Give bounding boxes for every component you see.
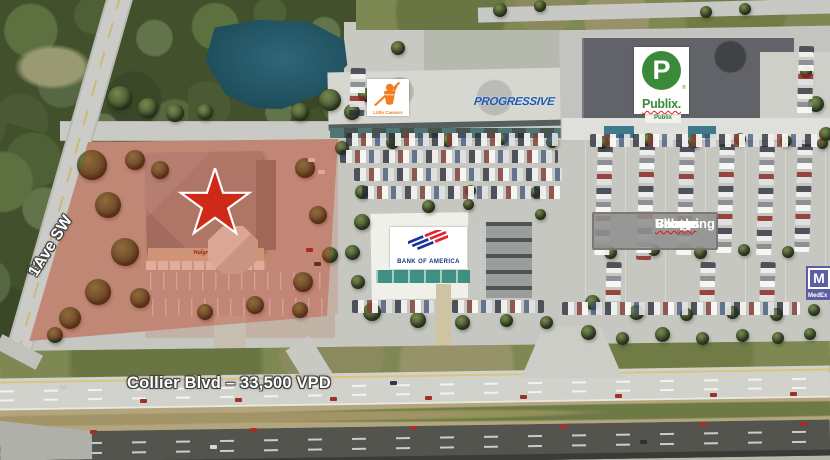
car-row	[349, 68, 366, 116]
car-row	[340, 150, 558, 163]
label-word-flagged: Center	[655, 216, 696, 232]
little-caesars-wordmark: Little Caesars	[367, 110, 409, 115]
tree	[581, 325, 596, 340]
publix-wordmark: Publix.	[634, 97, 689, 111]
tree	[463, 199, 474, 210]
car-row	[797, 46, 814, 116]
car	[330, 397, 337, 401]
tree	[319, 89, 341, 111]
car	[710, 393, 717, 397]
tree	[138, 98, 158, 118]
tree	[422, 200, 435, 213]
car	[425, 396, 432, 400]
car	[800, 422, 807, 426]
car-row	[354, 168, 562, 181]
tree	[500, 314, 513, 327]
tree	[738, 244, 750, 256]
car-row	[362, 186, 562, 199]
car	[520, 395, 527, 399]
publix-monogram-icon: P	[642, 51, 681, 90]
tree	[782, 246, 794, 258]
tree	[534, 0, 546, 12]
medexpress-monogram-icon: M	[808, 268, 830, 289]
tree	[455, 315, 470, 330]
car-row	[759, 262, 775, 302]
tree	[540, 316, 553, 329]
tree	[616, 332, 629, 345]
tree	[700, 6, 712, 18]
car	[390, 381, 397, 385]
tree	[108, 86, 132, 110]
bank-of-america-wordmark: BANK OF AMERICA	[390, 259, 467, 265]
car	[640, 440, 647, 444]
tree	[772, 332, 784, 344]
registered-mark: ®	[682, 85, 686, 91]
car-row	[605, 262, 621, 302]
subject-star-marker	[177, 168, 253, 240]
bank-of-america-flag-icon	[408, 230, 448, 252]
car	[700, 423, 707, 427]
tree	[291, 103, 309, 121]
tree	[736, 329, 749, 342]
car-row	[352, 300, 434, 313]
tree	[696, 332, 709, 345]
tree	[739, 3, 751, 15]
tree	[354, 214, 370, 230]
little-caesars-logo: Little Caesars	[367, 79, 409, 116]
little-caesars-icon	[370, 80, 406, 108]
car-row	[794, 144, 813, 252]
medexpress-logo: M MedEx	[806, 266, 830, 300]
car-row	[716, 144, 735, 256]
tree	[493, 3, 507, 17]
car-row	[562, 302, 800, 315]
tree	[655, 327, 670, 342]
medexpress-wordmark: MedEx	[808, 293, 827, 299]
shopping-center-name-label: Brooks Village Shopping Center	[592, 212, 718, 250]
progressive-logo: PROGRESSIVE	[473, 96, 555, 108]
bank-of-america-logo: BANK OF AMERICA	[390, 227, 467, 269]
tree	[804, 328, 816, 340]
car	[235, 398, 242, 402]
car	[60, 385, 67, 389]
tree	[410, 312, 426, 328]
car-row	[346, 133, 558, 146]
car-row	[452, 300, 544, 313]
tree	[351, 275, 365, 289]
car-row	[590, 134, 822, 147]
tree	[535, 209, 546, 220]
street-label-collier-blvd-vpd: Collier Blvd – 33,500 VPD	[127, 374, 331, 393]
car	[250, 428, 257, 432]
tree	[166, 104, 184, 122]
car	[615, 394, 622, 398]
tree	[345, 245, 360, 260]
tree	[391, 41, 405, 55]
car-row	[756, 146, 775, 256]
car	[410, 426, 417, 430]
aerial-map: Walgreens Publix 11th Ave SW Collier Blv…	[0, 0, 830, 460]
car	[210, 445, 217, 449]
car	[140, 399, 147, 403]
tree	[808, 304, 820, 316]
tree	[197, 104, 213, 120]
car-row	[699, 262, 715, 302]
publix-logo: P ® Publix.	[634, 47, 689, 114]
car	[90, 430, 97, 434]
car	[790, 392, 797, 396]
car	[560, 425, 567, 429]
